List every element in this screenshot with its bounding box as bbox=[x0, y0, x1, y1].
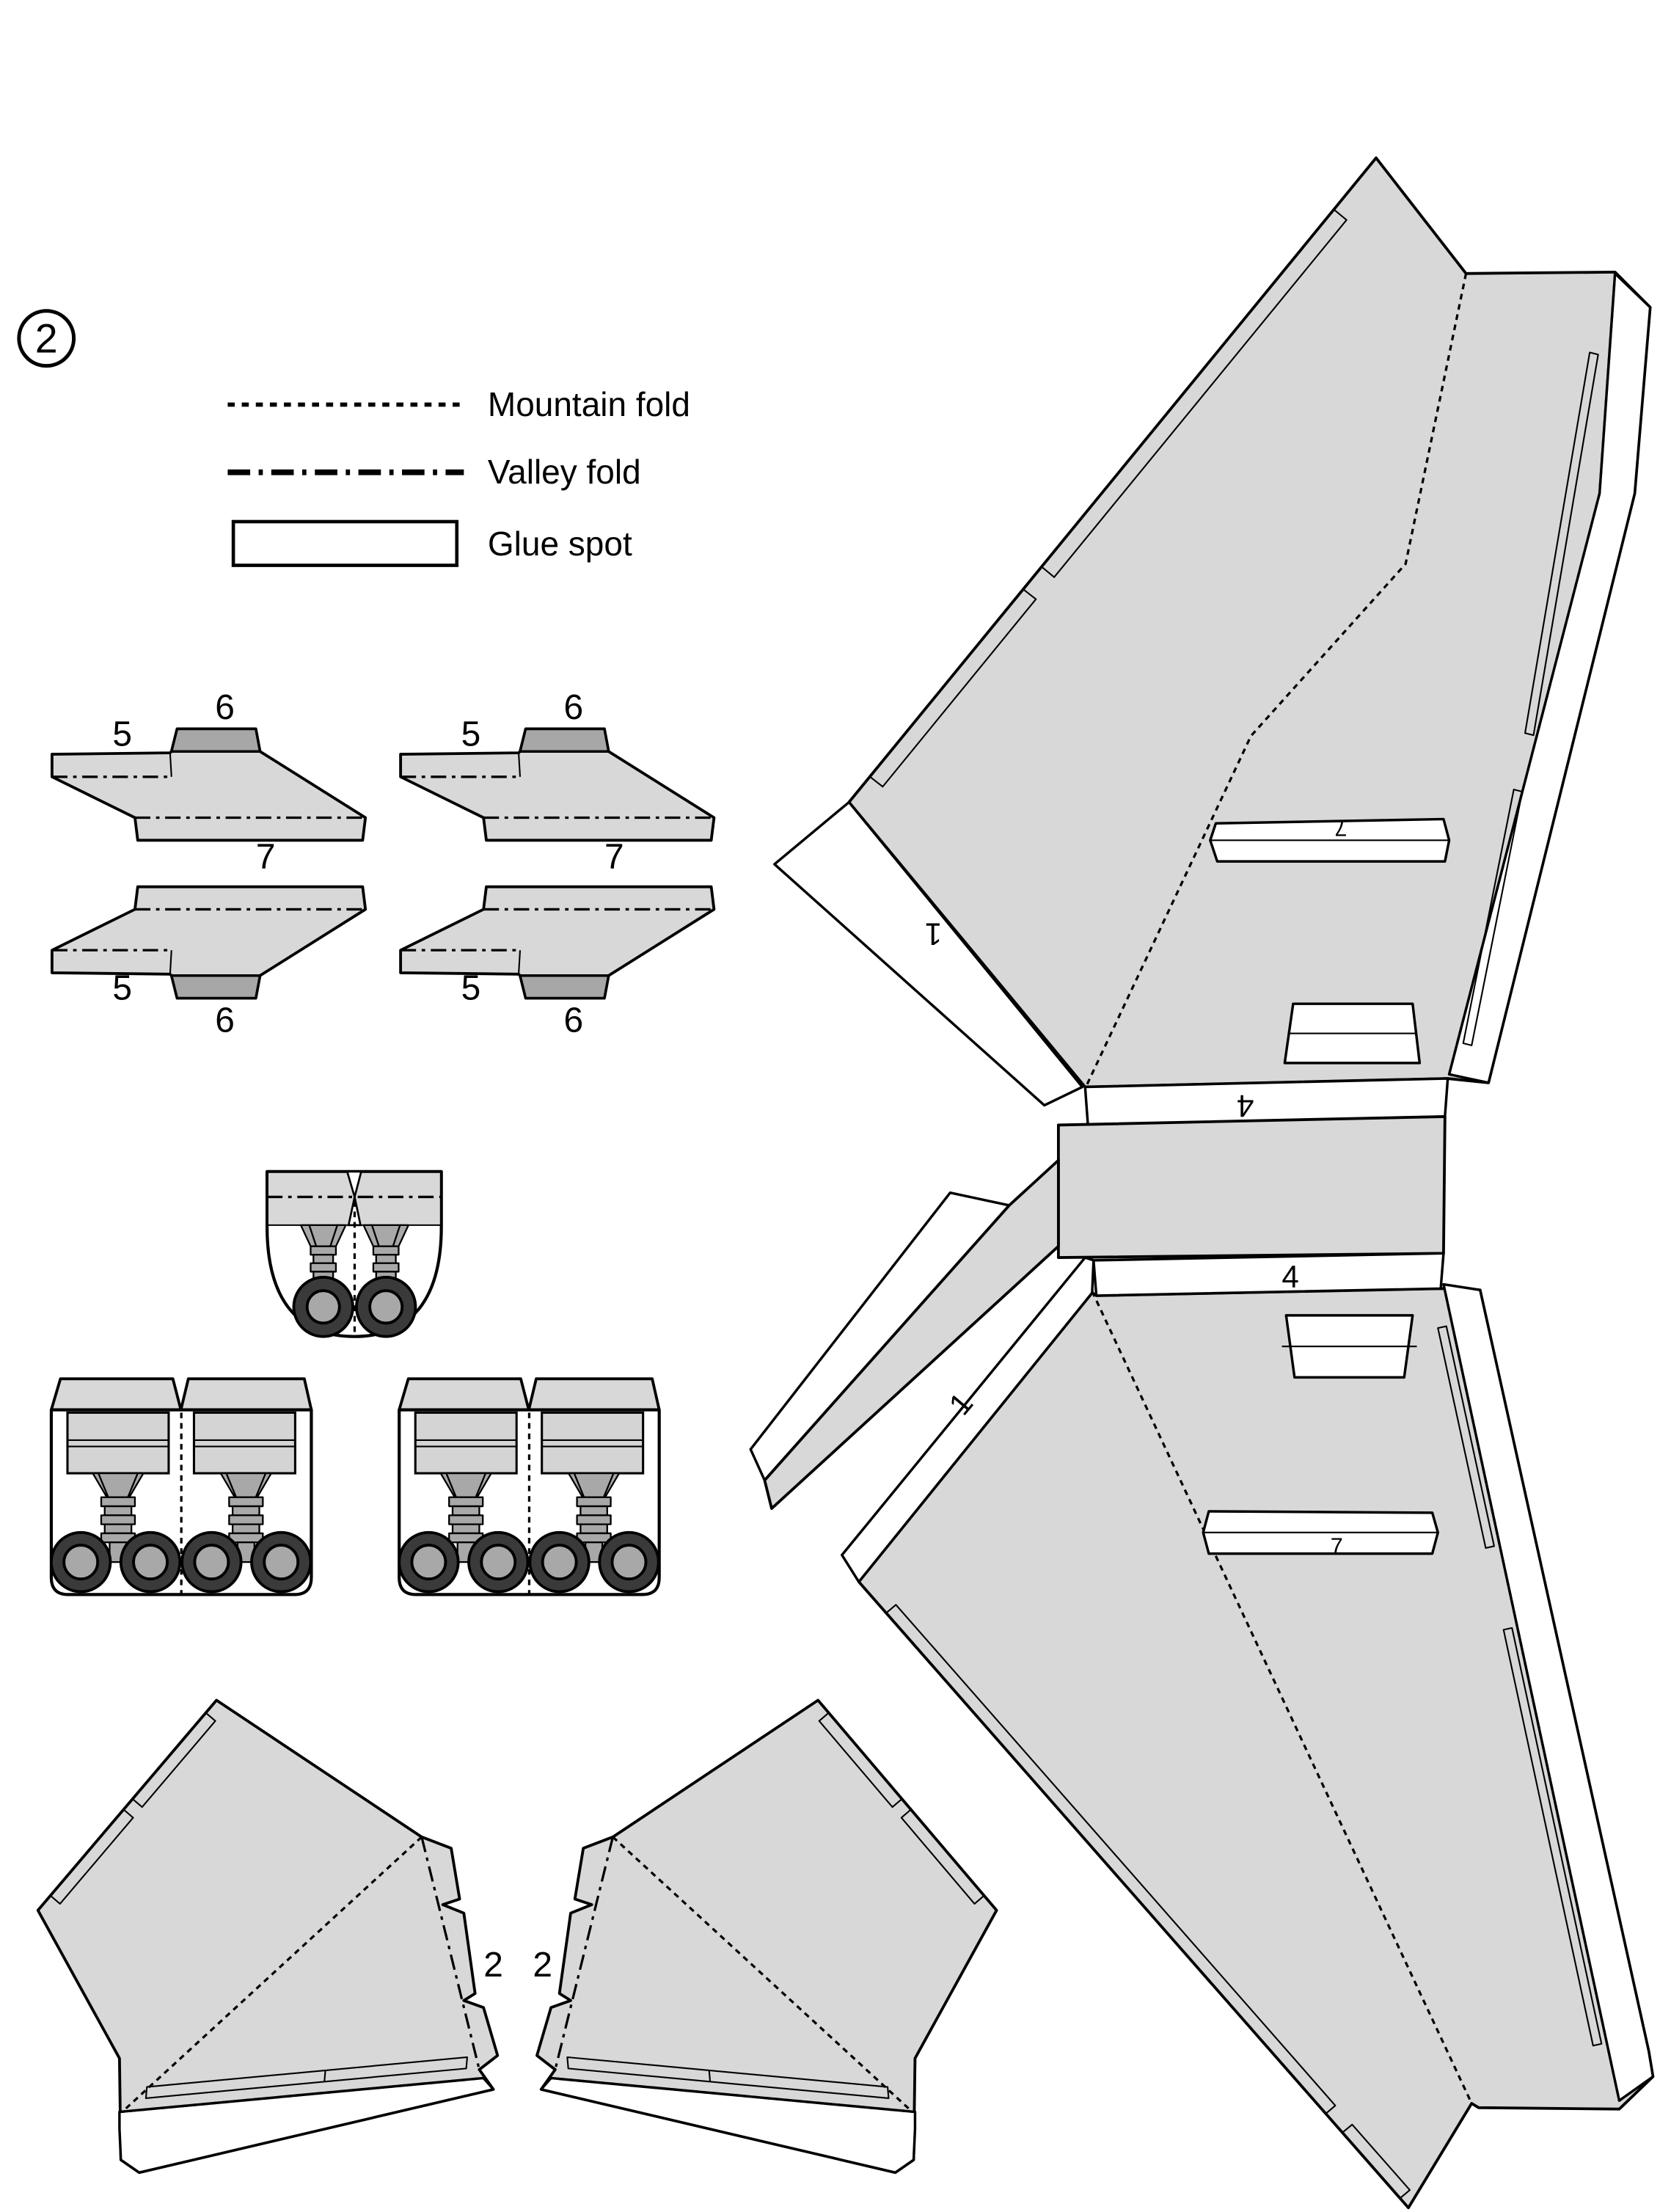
fin-piece-group-left: 5 6 7 5 6 bbox=[52, 688, 365, 1040]
fin-piece-2 bbox=[52, 887, 365, 999]
legend-glue-label: Glue spot bbox=[488, 525, 632, 563]
part-6-label: 6 bbox=[215, 1001, 235, 1040]
fin-piece-group-right: 5 6 7 5 6 bbox=[401, 688, 714, 1040]
glue-box-upper bbox=[1284, 1004, 1419, 1063]
glue-spot-icon bbox=[531, 1923, 551, 1946]
sheet-number: 2 bbox=[35, 315, 58, 361]
glue-spot-icon bbox=[485, 1923, 505, 1946]
glue-spot-icon bbox=[191, 695, 211, 718]
part-4-label: 4 bbox=[1281, 1259, 1298, 1293]
glue-spot-icon bbox=[437, 722, 457, 745]
part-7-label: 7 bbox=[1331, 1533, 1343, 1559]
glue-spot-icon bbox=[540, 695, 560, 718]
fin-piece-1 bbox=[52, 729, 365, 840]
legend: Mountain fold Valley fold Glue spot bbox=[227, 385, 690, 566]
fin-piece-3 bbox=[401, 729, 714, 840]
legend-mountain-label: Mountain fold bbox=[488, 385, 690, 423]
part-2-label: 2 bbox=[533, 1946, 552, 1985]
part-2-label: 2 bbox=[483, 1946, 503, 1985]
wing-lower-strip-4 bbox=[1094, 1253, 1444, 1296]
glue-spot-icon bbox=[230, 844, 250, 867]
glue-tab-7-lower: 7 bbox=[1203, 1511, 1438, 1559]
main-gear-assembly-left bbox=[51, 1379, 311, 1594]
glue-spot-icon bbox=[437, 976, 457, 999]
glue-box-lower bbox=[1282, 1315, 1417, 1378]
part-5-label: 5 bbox=[461, 715, 481, 753]
part-7-label: 7 bbox=[604, 838, 624, 877]
papercraft-sheet: 2 Mountain fold Valley fold Glue spot 5 … bbox=[0, 0, 1660, 2212]
part-4-label: 4 bbox=[1237, 1089, 1254, 1123]
legend-valley-label: Valley fold bbox=[488, 453, 641, 491]
wing-lower-piece: 7 1 4 bbox=[842, 1253, 1653, 2208]
part-1-label: 1 bbox=[925, 917, 942, 952]
part-7-label: 7 bbox=[256, 838, 276, 877]
part-5-label: 5 bbox=[112, 968, 132, 1007]
main-gear-assembly-right bbox=[399, 1379, 659, 1594]
winglet-piece-right bbox=[537, 1700, 997, 2172]
glue-spot-icon bbox=[579, 844, 599, 867]
part-6-label: 6 bbox=[215, 688, 235, 727]
part-6-label: 6 bbox=[563, 1001, 583, 1040]
glue-spot-icon bbox=[89, 976, 109, 999]
fin-piece-4 bbox=[401, 887, 714, 999]
glue-spot-icon bbox=[89, 722, 109, 745]
wing-upper-piece: 7 1 4 bbox=[775, 158, 1650, 1125]
wing-center-section bbox=[1058, 1117, 1445, 1258]
glue-tab-7-upper: 7 bbox=[1210, 815, 1449, 861]
part-6-label: 6 bbox=[563, 688, 583, 727]
glue-spot-sample-box bbox=[233, 522, 457, 566]
part-7-label: 7 bbox=[1335, 815, 1348, 841]
sheet-number-badge: 2 bbox=[19, 311, 74, 366]
winglet-piece-left bbox=[38, 1700, 498, 2172]
part-5-label: 5 bbox=[112, 715, 132, 753]
nose-gear-piece bbox=[267, 1172, 442, 1337]
glue-spot-icon bbox=[191, 1008, 211, 1031]
part-5-label: 5 bbox=[461, 968, 481, 1007]
glue-spot-icon bbox=[540, 1008, 560, 1031]
